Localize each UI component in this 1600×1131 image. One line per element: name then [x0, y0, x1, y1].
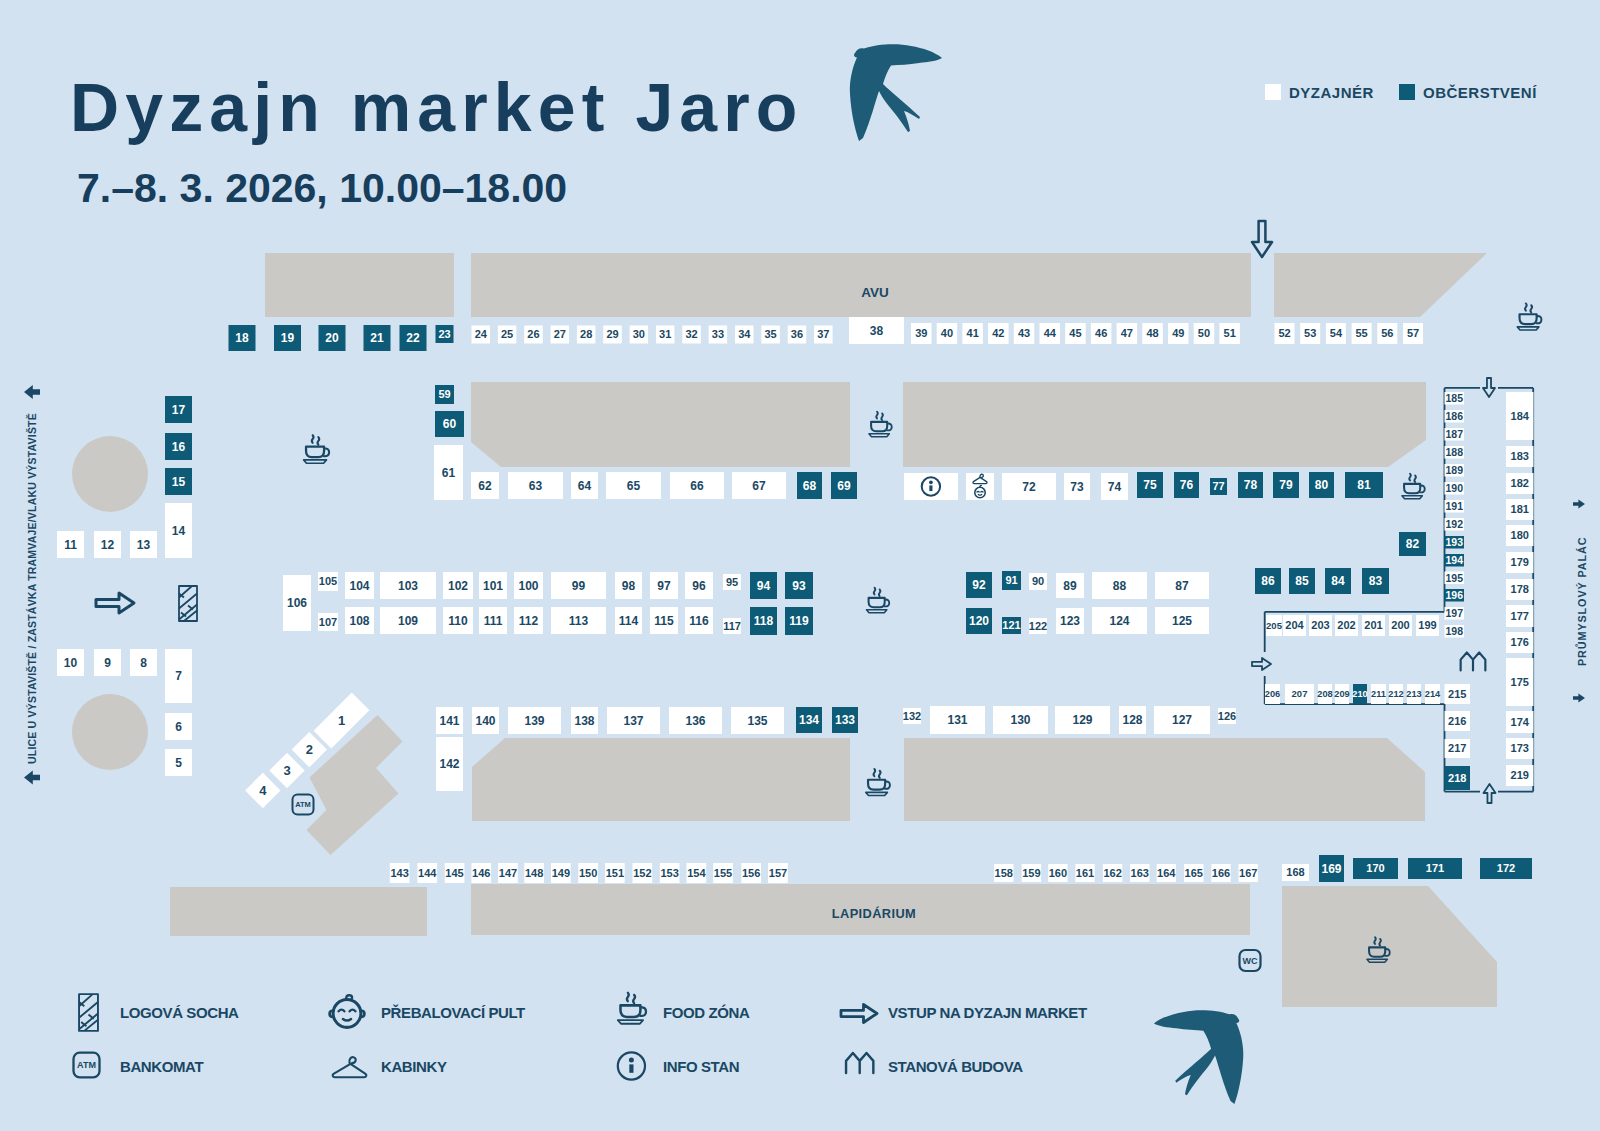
svg-text:119: 119 [789, 614, 809, 628]
svg-text:23: 23 [438, 328, 450, 340]
svg-text:24: 24 [475, 328, 488, 340]
svg-text:176: 176 [1511, 636, 1529, 648]
svg-text:55: 55 [1355, 327, 1367, 339]
svg-text:61: 61 [442, 466, 456, 480]
svg-text:199: 199 [1418, 619, 1436, 631]
svg-text:86: 86 [1261, 574, 1275, 588]
svg-text:ATM: ATM [77, 1060, 96, 1070]
svg-text:4: 4 [259, 783, 267, 798]
svg-text:103: 103 [398, 579, 418, 593]
svg-text:35: 35 [764, 328, 776, 340]
svg-text:129: 129 [1072, 713, 1092, 727]
svg-text:171: 171 [1426, 862, 1444, 874]
svg-text:167: 167 [1239, 867, 1257, 879]
svg-text:153: 153 [660, 867, 678, 879]
svg-text:198: 198 [1445, 625, 1463, 637]
svg-text:13: 13 [137, 538, 151, 552]
svg-text:196: 196 [1445, 589, 1463, 601]
svg-text:83: 83 [1369, 574, 1383, 588]
svg-text:155: 155 [714, 867, 732, 879]
svg-text:38: 38 [870, 324, 884, 338]
svg-text:145: 145 [445, 867, 463, 879]
svg-text:185: 185 [1445, 392, 1463, 404]
svg-text:195: 195 [1445, 572, 1463, 584]
svg-text:124: 124 [1109, 614, 1129, 628]
svg-text:8: 8 [140, 656, 147, 670]
svg-text:216: 216 [1448, 715, 1466, 727]
svg-text:10: 10 [64, 656, 78, 670]
svg-text:92: 92 [972, 578, 986, 592]
svg-text:120: 120 [969, 614, 989, 628]
svg-text:81: 81 [1357, 478, 1371, 492]
svg-text:30: 30 [633, 328, 645, 340]
svg-text:201: 201 [1364, 619, 1382, 631]
svg-text:206: 206 [1265, 689, 1280, 699]
svg-text:31: 31 [659, 328, 671, 340]
svg-text:100: 100 [518, 579, 538, 593]
svg-text:140: 140 [475, 714, 495, 728]
svg-text:181: 181 [1511, 503, 1529, 515]
svg-text:64: 64 [578, 479, 592, 493]
svg-text:66: 66 [690, 479, 704, 493]
svg-text:188: 188 [1445, 446, 1463, 458]
svg-text:19: 19 [281, 331, 295, 345]
svg-text:177: 177 [1511, 610, 1529, 622]
svg-text:169: 169 [1321, 862, 1341, 876]
svg-text:158: 158 [995, 867, 1013, 879]
svg-text:ULICE U VÝSTAVIŠTĚ / ZASTÁVKA: ULICE U VÝSTAVIŠTĚ / ZASTÁVKA TRAMVAJE/V… [26, 413, 38, 764]
svg-text:98: 98 [622, 579, 636, 593]
svg-text:137: 137 [623, 714, 643, 728]
svg-text:219: 219 [1511, 769, 1529, 781]
svg-text:47: 47 [1121, 327, 1133, 339]
svg-text:94: 94 [757, 579, 771, 593]
svg-text:27: 27 [554, 328, 566, 340]
svg-text:159: 159 [1022, 867, 1040, 879]
svg-text:205: 205 [1266, 620, 1283, 631]
svg-text:202: 202 [1337, 619, 1355, 631]
svg-text:116: 116 [689, 614, 709, 628]
svg-text:18: 18 [235, 331, 249, 345]
svg-text:95: 95 [726, 576, 738, 588]
svg-text:132: 132 [903, 710, 921, 722]
svg-text:69: 69 [837, 479, 851, 493]
svg-text:80: 80 [1315, 478, 1329, 492]
svg-text:114: 114 [619, 614, 639, 628]
svg-text:Dyzajn market Jaro: Dyzajn market Jaro [70, 69, 803, 145]
svg-text:209: 209 [1334, 689, 1349, 699]
svg-text:149: 149 [552, 867, 570, 879]
svg-text:25: 25 [501, 328, 513, 340]
svg-text:143: 143 [390, 867, 408, 879]
svg-text:1: 1 [338, 713, 345, 728]
svg-text:54: 54 [1330, 327, 1343, 339]
svg-text:147: 147 [499, 867, 517, 879]
svg-text:183: 183 [1511, 450, 1529, 462]
svg-text:60: 60 [443, 417, 457, 431]
svg-text:207: 207 [1292, 688, 1308, 699]
svg-text:197: 197 [1445, 607, 1463, 619]
svg-text:82: 82 [1406, 537, 1420, 551]
svg-text:87: 87 [1175, 579, 1189, 593]
svg-text:102: 102 [448, 579, 468, 593]
svg-text:53: 53 [1304, 327, 1316, 339]
svg-text:179: 179 [1511, 556, 1529, 568]
svg-text:LOGOVÁ SOCHA: LOGOVÁ SOCHA [120, 1004, 239, 1021]
svg-text:45: 45 [1069, 327, 1081, 339]
svg-text:168: 168 [1286, 866, 1304, 878]
svg-text:126: 126 [1218, 710, 1236, 722]
svg-text:154: 154 [687, 867, 706, 879]
svg-text:213: 213 [1406, 689, 1421, 699]
svg-text:16: 16 [172, 440, 186, 454]
svg-text:79: 79 [1279, 478, 1293, 492]
svg-text:212: 212 [1388, 689, 1403, 699]
svg-text:165: 165 [1185, 867, 1203, 879]
svg-text:151: 151 [606, 867, 624, 879]
svg-text:91: 91 [1005, 574, 1017, 586]
svg-text:62: 62 [478, 479, 492, 493]
svg-text:PŘEBALOVACÍ PULT: PŘEBALOVACÍ PULT [381, 1004, 525, 1021]
svg-text:122: 122 [1029, 620, 1047, 632]
svg-text:15: 15 [172, 475, 186, 489]
svg-text:INFO STAN: INFO STAN [663, 1058, 739, 1075]
svg-text:7.–8. 3. 2026, 10.00–18.00: 7.–8. 3. 2026, 10.00–18.00 [77, 165, 567, 211]
svg-text:85: 85 [1295, 574, 1309, 588]
svg-text:3: 3 [283, 763, 290, 778]
svg-text:84: 84 [1331, 574, 1345, 588]
svg-text:57: 57 [1407, 327, 1419, 339]
svg-text:65: 65 [627, 479, 641, 493]
svg-text:ATM: ATM [295, 800, 311, 809]
svg-text:117: 117 [723, 620, 741, 632]
svg-text:28: 28 [580, 328, 592, 340]
svg-text:59: 59 [438, 388, 450, 400]
svg-text:162: 162 [1103, 867, 1121, 879]
svg-text:148: 148 [525, 867, 543, 879]
svg-text:KABINKY: KABINKY [381, 1058, 447, 1075]
svg-text:108: 108 [349, 614, 369, 628]
svg-text:43: 43 [1018, 327, 1030, 339]
svg-text:113: 113 [569, 614, 589, 628]
svg-text:36: 36 [791, 328, 803, 340]
svg-text:128: 128 [1122, 713, 1142, 727]
svg-text:211: 211 [1371, 689, 1386, 699]
svg-text:97: 97 [657, 579, 671, 593]
svg-text:48: 48 [1146, 327, 1158, 339]
svg-text:131: 131 [947, 713, 967, 727]
svg-text:11: 11 [64, 538, 77, 552]
svg-text:161: 161 [1076, 867, 1094, 879]
svg-text:33: 33 [712, 328, 724, 340]
svg-text:110: 110 [448, 614, 468, 628]
svg-text:189: 189 [1445, 464, 1463, 476]
svg-text:44: 44 [1044, 327, 1057, 339]
svg-text:67: 67 [752, 479, 766, 493]
svg-text:WC: WC [1243, 956, 1258, 966]
svg-text:142: 142 [439, 757, 459, 771]
svg-text:OBČERSTVENÍ: OBČERSTVENÍ [1423, 84, 1537, 101]
svg-text:12: 12 [101, 538, 115, 552]
svg-text:156: 156 [742, 867, 760, 879]
svg-text:AVU: AVU [861, 285, 889, 300]
svg-text:29: 29 [606, 328, 618, 340]
svg-text:208: 208 [1317, 689, 1332, 699]
svg-text:41: 41 [967, 327, 979, 339]
svg-text:144: 144 [418, 867, 437, 879]
svg-text:180: 180 [1511, 529, 1529, 541]
svg-text:136: 136 [685, 714, 705, 728]
svg-text:121: 121 [1002, 619, 1020, 631]
svg-text:127: 127 [1172, 713, 1192, 727]
svg-text:150: 150 [579, 867, 597, 879]
svg-text:68: 68 [803, 479, 817, 493]
svg-text:164: 164 [1157, 867, 1176, 879]
svg-text:111: 111 [484, 614, 503, 628]
svg-text:192: 192 [1445, 518, 1463, 530]
svg-text:46: 46 [1095, 327, 1107, 339]
svg-text:32: 32 [685, 328, 697, 340]
svg-text:99: 99 [572, 579, 586, 593]
svg-text:130: 130 [1010, 713, 1030, 727]
svg-text:138: 138 [574, 714, 594, 728]
svg-text:49: 49 [1172, 327, 1184, 339]
svg-text:152: 152 [633, 867, 651, 879]
svg-text:78: 78 [1244, 478, 1258, 492]
svg-text:109: 109 [398, 614, 418, 628]
svg-text:106: 106 [287, 596, 307, 610]
svg-text:210: 210 [1352, 689, 1367, 699]
svg-text:204: 204 [1285, 619, 1304, 631]
svg-text:139: 139 [524, 714, 544, 728]
svg-text:LAPIDÁRIUM: LAPIDÁRIUM [832, 906, 916, 921]
svg-text:75: 75 [1143, 478, 1157, 492]
svg-text:17: 17 [172, 403, 186, 417]
svg-text:146: 146 [472, 867, 490, 879]
svg-text:7: 7 [175, 669, 182, 683]
svg-text:141: 141 [439, 714, 459, 728]
svg-text:88: 88 [1113, 579, 1127, 593]
svg-text:34: 34 [738, 328, 751, 340]
svg-text:FOOD ZÓNA: FOOD ZÓNA [663, 1004, 750, 1021]
svg-text:72: 72 [1022, 480, 1036, 494]
svg-text:187: 187 [1445, 428, 1463, 440]
svg-text:215: 215 [1448, 688, 1466, 700]
svg-text:101: 101 [483, 579, 503, 593]
svg-text:118: 118 [754, 614, 774, 628]
svg-text:174: 174 [1511, 716, 1530, 728]
svg-text:42: 42 [992, 327, 1004, 339]
svg-text:214: 214 [1425, 689, 1441, 699]
svg-text:112: 112 [519, 614, 539, 628]
svg-text:190: 190 [1445, 482, 1463, 494]
svg-text:6: 6 [175, 720, 182, 734]
svg-text:200: 200 [1391, 619, 1409, 631]
svg-text:157: 157 [769, 867, 787, 879]
svg-text:115: 115 [654, 614, 674, 628]
svg-text:50: 50 [1198, 327, 1210, 339]
svg-text:51: 51 [1224, 327, 1236, 339]
svg-text:5: 5 [175, 756, 182, 770]
svg-text:166: 166 [1212, 867, 1230, 879]
svg-text:182: 182 [1511, 477, 1529, 489]
svg-text:123: 123 [1060, 614, 1080, 628]
svg-text:134: 134 [799, 713, 819, 727]
svg-text:74: 74 [1108, 480, 1122, 494]
svg-text:125: 125 [1172, 614, 1192, 628]
svg-text:9: 9 [104, 656, 111, 670]
svg-text:VSTUP NA DYZAJN MARKET: VSTUP NA DYZAJN MARKET [888, 1004, 1087, 1021]
svg-text:172: 172 [1497, 862, 1515, 874]
svg-text:217: 217 [1448, 742, 1466, 754]
svg-text:63: 63 [529, 479, 543, 493]
svg-text:218: 218 [1448, 772, 1466, 784]
svg-text:90: 90 [1032, 575, 1044, 587]
svg-text:56: 56 [1381, 327, 1393, 339]
svg-text:93: 93 [792, 579, 806, 593]
svg-text:2: 2 [306, 742, 313, 757]
svg-text:22: 22 [406, 331, 420, 345]
svg-text:184: 184 [1511, 410, 1530, 422]
svg-text:178: 178 [1511, 583, 1529, 595]
svg-text:173: 173 [1511, 742, 1529, 754]
svg-text:STANOVÁ BUDOVA: STANOVÁ BUDOVA [888, 1058, 1023, 1075]
svg-text:186: 186 [1445, 410, 1463, 422]
svg-text:135: 135 [747, 714, 767, 728]
svg-text:52: 52 [1278, 327, 1290, 339]
svg-text:104: 104 [349, 579, 369, 593]
svg-text:76: 76 [1180, 478, 1194, 492]
svg-text:PRŮMYSLOVÝ PALÁC: PRŮMYSLOVÝ PALÁC [1575, 537, 1588, 666]
svg-text:203: 203 [1311, 619, 1329, 631]
svg-text:193: 193 [1445, 536, 1463, 548]
svg-text:107: 107 [319, 616, 337, 628]
svg-text:14: 14 [172, 524, 186, 538]
svg-text:89: 89 [1063, 579, 1077, 593]
svg-text:73: 73 [1070, 480, 1084, 494]
svg-text:39: 39 [915, 327, 927, 339]
svg-text:191: 191 [1445, 500, 1463, 512]
svg-text:77: 77 [1212, 480, 1224, 492]
svg-text:40: 40 [941, 327, 953, 339]
svg-text:BANKOMAT: BANKOMAT [120, 1058, 203, 1075]
svg-text:DYZAJNÉR: DYZAJNÉR [1289, 84, 1374, 101]
svg-text:105: 105 [319, 575, 337, 587]
svg-text:160: 160 [1049, 867, 1067, 879]
svg-text:133: 133 [835, 713, 855, 727]
svg-text:163: 163 [1131, 867, 1149, 879]
svg-text:170: 170 [1366, 862, 1384, 874]
svg-text:175: 175 [1511, 676, 1529, 688]
svg-text:96: 96 [692, 579, 706, 593]
svg-text:37: 37 [817, 328, 829, 340]
svg-text:20: 20 [325, 331, 339, 345]
svg-text:194: 194 [1445, 554, 1463, 566]
svg-text:26: 26 [527, 328, 539, 340]
svg-text:21: 21 [370, 331, 384, 345]
